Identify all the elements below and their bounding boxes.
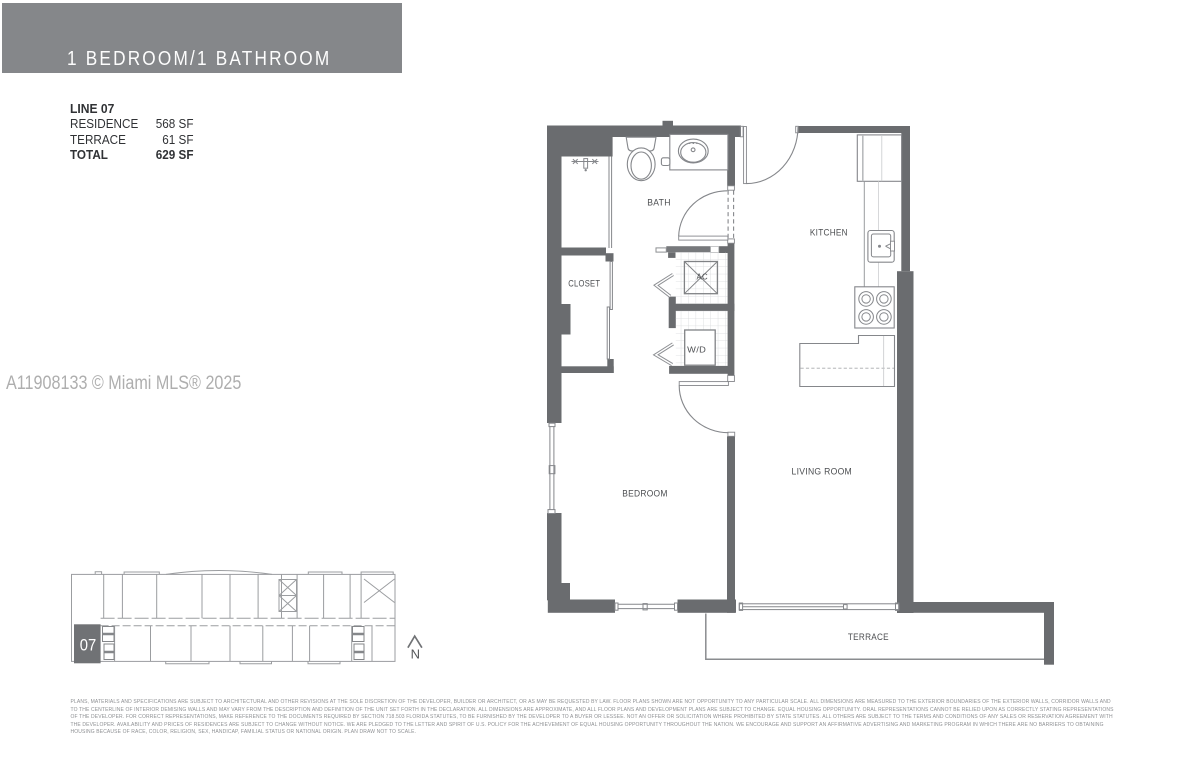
svg-text:N: N [411, 647, 420, 662]
svg-text:TERRACE: TERRACE [848, 632, 889, 642]
svg-text:CLOSET: CLOSET [568, 279, 600, 289]
svg-text:BATH: BATH [647, 197, 670, 207]
svg-text:BEDROOM: BEDROOM [622, 489, 668, 499]
svg-text:KITCHEN: KITCHEN [810, 228, 848, 238]
svg-text:W/D: W/D [687, 345, 706, 355]
svg-text:LIVING ROOM: LIVING ROOM [792, 467, 853, 477]
svg-text:AC: AC [697, 272, 708, 282]
svg-text:07: 07 [80, 637, 97, 655]
